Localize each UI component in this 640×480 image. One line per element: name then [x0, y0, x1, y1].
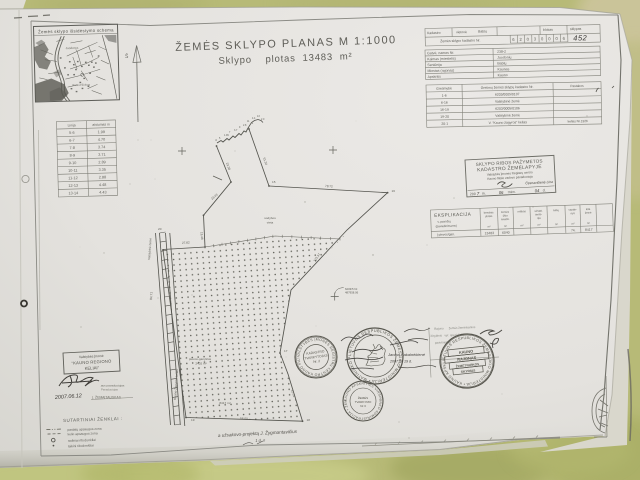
svg-text:18: 18	[307, 418, 311, 422]
svg-text:Juodonys: Juodonys	[66, 46, 79, 50]
svg-text:2.88: 2.88	[99, 175, 106, 179]
svg-text:Panevėžiukas: Panevėžiukas	[72, 83, 90, 87]
svg-text:m²: m²	[488, 225, 491, 228]
svg-text:2007 06 19 d.: 2007 06 19 d.	[389, 360, 412, 364]
svg-text:18.48: 18.48	[200, 232, 205, 240]
svg-text:1: 1	[252, 121, 254, 125]
svg-text:16: 16	[392, 189, 396, 193]
svg-text:bendras: bendras	[484, 210, 495, 214]
svg-text:19: 19	[191, 418, 195, 422]
svg-text:1.99: 1.99	[224, 134, 229, 137]
svg-text:Valstybinė žemė: Valstybinė žemė	[495, 113, 520, 117]
svg-text:5-6: 5-6	[69, 131, 75, 135]
svg-text:4: 4	[215, 138, 217, 142]
svg-text:m²: m²	[555, 223, 558, 226]
svg-text:sklypas: sklypas	[570, 27, 582, 31]
svg-text:3.74: 3.74	[98, 145, 105, 149]
svg-text:27.82: 27.82	[182, 241, 190, 245]
svg-text:1-6: 1-6	[442, 94, 447, 98]
svg-text:487958.06: 487958.06	[345, 291, 359, 295]
svg-text:8417 m²: 8417 m²	[219, 401, 230, 405]
svg-text:Valstybinė žemė: Valstybinė žemė	[495, 99, 520, 103]
svg-text:1.99: 1.99	[98, 130, 105, 134]
svg-text:m²: m²	[571, 222, 574, 225]
svg-text:6203/0005/0107: 6203/0005/0107	[495, 92, 520, 96]
svg-text:2402 m²: 2402 m²	[195, 362, 206, 366]
svg-text:3.35: 3.35	[99, 168, 106, 172]
svg-text:naudm.: naudm.	[501, 217, 510, 221]
svg-text:6-7: 6-7	[69, 138, 75, 142]
svg-text:19-20: 19-20	[440, 115, 449, 119]
svg-text:Žemės sklypo kadastro Nr.: Žemės sklypo kadastro Nr.	[440, 37, 480, 43]
svg-text:10-11: 10-11	[68, 169, 78, 173]
svg-text:Apskritis: Apskritis	[428, 75, 442, 79]
svg-text:238-2: 238-2	[497, 50, 506, 54]
svg-text:12-13: 12-13	[68, 184, 78, 188]
svg-text:žemės: žemės	[501, 210, 510, 214]
svg-text:Juodonių: Juodonių	[497, 55, 511, 59]
svg-text:Pastabos: Pastabos	[570, 84, 584, 88]
svg-text:7-8: 7-8	[69, 146, 75, 150]
svg-text:žemė: žemė	[585, 210, 592, 214]
svg-text:Babtų: Babtų	[497, 61, 506, 65]
svg-text:78.72: 78.72	[325, 184, 333, 188]
svg-text:20-1: 20-1	[441, 122, 448, 126]
svg-text:84.71: 84.71	[149, 292, 154, 300]
svg-text:17: 17	[284, 349, 288, 353]
svg-text:blokas: blokas	[543, 28, 553, 32]
svg-text:m²: m²	[587, 222, 590, 225]
svg-text:d.: d.	[543, 188, 546, 192]
svg-text:Babtų: Babtų	[478, 29, 487, 33]
svg-text:Seniūnija: Seniūnija	[427, 63, 442, 67]
svg-text:Kaunas: Kaunas	[497, 67, 509, 71]
svg-text:vietovė: vietovė	[456, 30, 467, 34]
svg-text:kelias Nr.1926: kelias Nr.1926	[568, 119, 588, 123]
svg-text:KELIAI”: KELIAI”	[84, 365, 99, 371]
svg-text:8417: 8417	[585, 228, 593, 232]
svg-text:m²: m²	[504, 225, 507, 228]
svg-text:6-16: 6-16	[441, 101, 448, 105]
svg-text:kita: kita	[586, 207, 591, 211]
svg-text:4.43: 4.43	[99, 190, 106, 194]
svg-text:m.: m.	[482, 191, 486, 195]
svg-text:3.71: 3.71	[98, 153, 105, 157]
svg-text:2.89: 2.89	[98, 160, 105, 164]
svg-text:nys: nys	[571, 212, 576, 215]
svg-text:Kadastro: Kadastro	[427, 31, 441, 35]
svg-text:Gretimybė: Gretimybė	[436, 86, 452, 90]
svg-text:vande-: vande-	[568, 207, 576, 211]
svg-text:74.: 74.	[571, 228, 576, 232]
svg-text:4.48: 4.48	[99, 183, 106, 187]
svg-text:kelių: kelių	[553, 208, 559, 212]
svg-text:20: 20	[158, 227, 162, 231]
svg-text:terito-: terito-	[535, 212, 542, 216]
svg-text:200: 200	[470, 192, 476, 196]
svg-text:mėn.: mėn.	[508, 190, 516, 194]
svg-text:Kaimas (miestelis): Kaimas (miestelis)	[427, 57, 456, 62]
svg-text:Janina Pakalnėkienė: Janina Pakalnėkienė	[387, 352, 426, 357]
svg-text:Pavaduotojas: Pavaduotojas	[101, 388, 119, 392]
svg-text:452: 452	[573, 33, 588, 42]
svg-text:(pavadinimams): (pavadinimams)	[436, 224, 457, 229]
svg-text:plotas: plotas	[485, 214, 493, 218]
svg-text:13-14: 13-14	[68, 191, 78, 195]
svg-text:sodybos: sodybos	[264, 216, 276, 220]
svg-text:8-9: 8-9	[70, 154, 76, 158]
svg-text:užstat.: užstat.	[535, 209, 543, 213]
svg-text:miškas: miškas	[517, 209, 526, 213]
svg-text:Gatvė, namas Nr.: Gatvė, namas Nr.	[427, 51, 454, 56]
svg-text:4.70: 4.70	[98, 138, 105, 142]
svg-text:m²: m²	[520, 224, 523, 227]
svg-text:Linija: Linija	[68, 123, 76, 127]
svg-text:11-12: 11-12	[68, 176, 78, 180]
svg-text:Nr.3: Nr.3	[360, 404, 366, 408]
svg-text:ūkio: ūkio	[503, 213, 509, 217]
svg-text:Kauno: Kauno	[498, 73, 508, 77]
svg-text:Į pievos/gan.: Į pievos/gan.	[437, 232, 455, 237]
svg-text:13483: 13483	[485, 231, 495, 235]
svg-text:atstumas m: atstumas m	[92, 122, 110, 126]
svg-text:rija: rija	[537, 216, 541, 220]
svg-text:9-10: 9-10	[69, 161, 77, 165]
svg-text:6040: 6040	[502, 231, 510, 235]
svg-text:pievos-ganyklos: pievos-ganyklos	[189, 357, 212, 361]
svg-text:6203/0005/0106: 6203/0005/0106	[495, 106, 520, 110]
svg-text:15: 15	[272, 180, 276, 184]
svg-text:m²: m²	[537, 224, 540, 227]
svg-text:16-19: 16-19	[440, 108, 449, 112]
svg-text:V. “Kauno žagyros” kelias: V. “Kauno žagyros” kelias	[489, 120, 528, 125]
svg-text:Miestas (rajonas): Miestas (rajonas)	[427, 68, 454, 73]
svg-text:56.00: 56.00	[240, 417, 248, 421]
svg-text:vieta: vieta	[267, 221, 274, 225]
